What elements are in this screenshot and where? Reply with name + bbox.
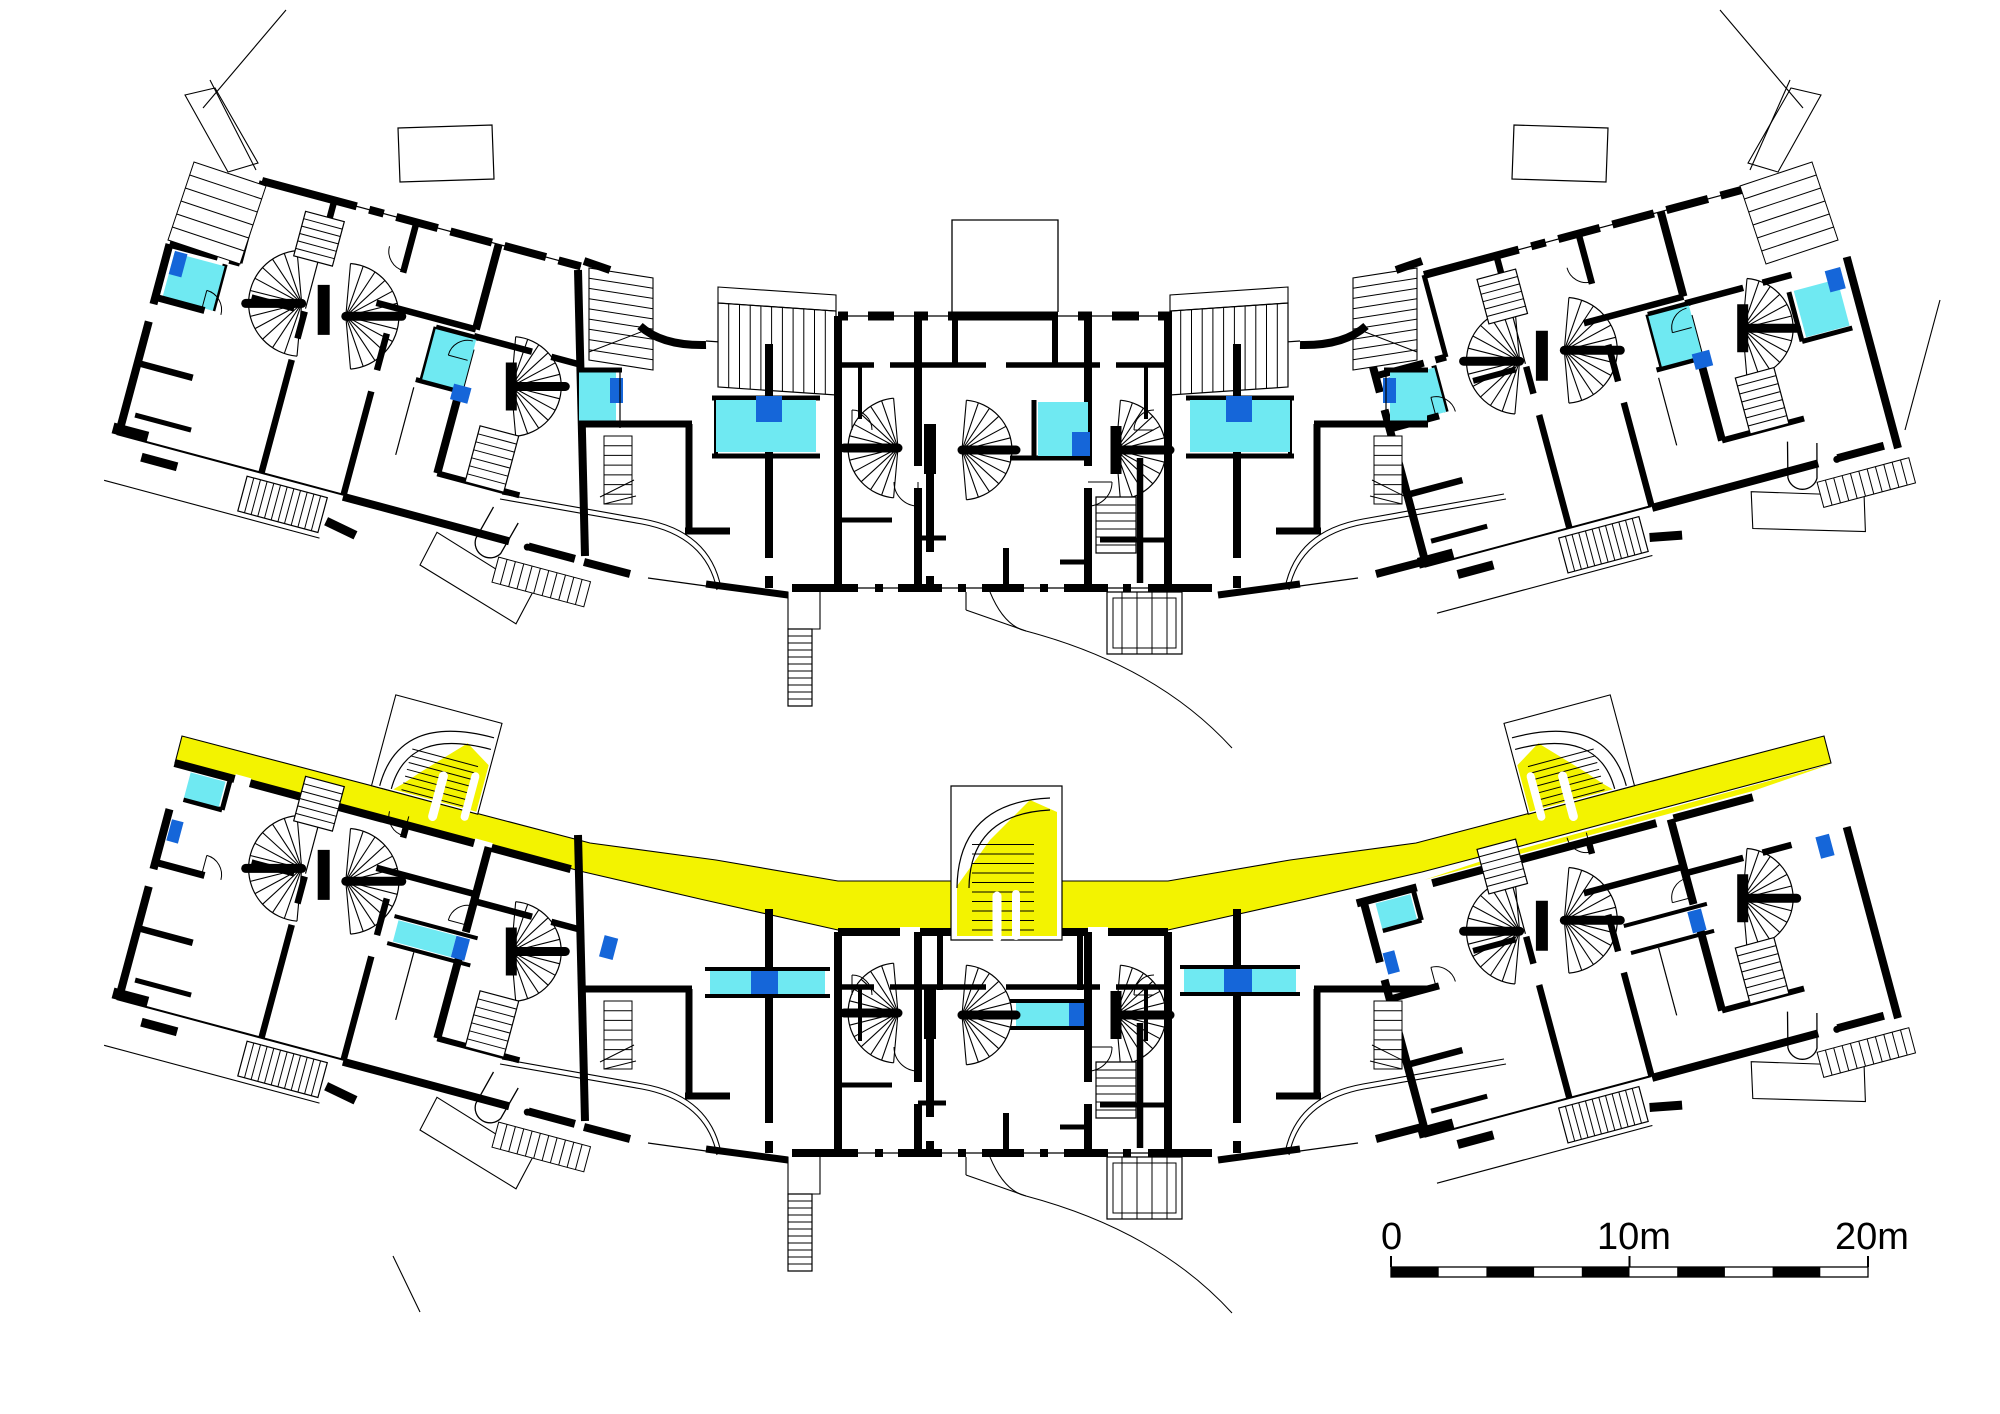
svg-text:0: 0: [1381, 1216, 1402, 1258]
svg-text:20m: 20m: [1835, 1216, 1909, 1258]
svg-text:10m: 10m: [1597, 1216, 1671, 1258]
